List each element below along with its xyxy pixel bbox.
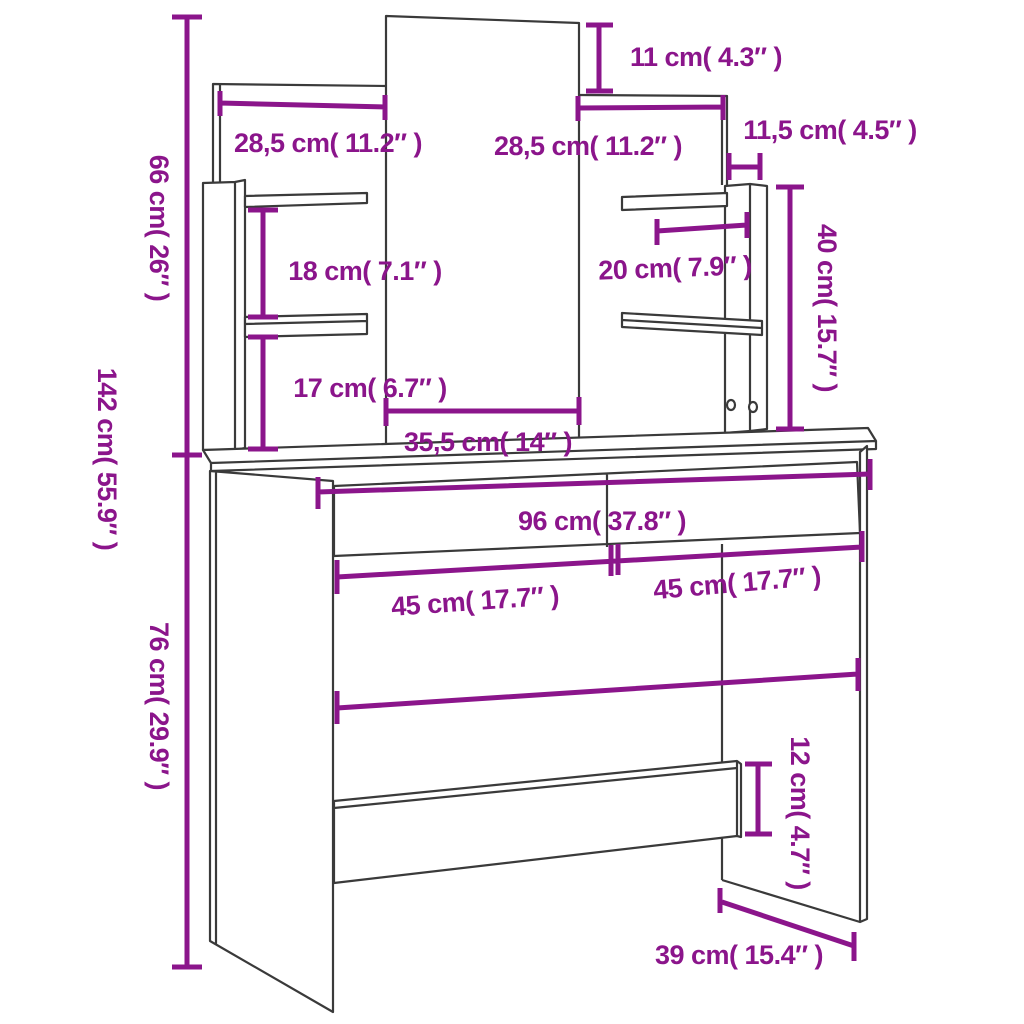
label-right-shelf-width: 20 cm( 7.9″ ) xyxy=(598,250,752,285)
label-tabletop-width: 96 cm( 37.8″ ) xyxy=(518,506,686,536)
label-stretcher-height: 12 cm( 4.7″ ) xyxy=(785,736,815,890)
label-side-column-gap: 11,5 cm( 4.5″ ) xyxy=(743,115,917,145)
dim-line-right-panel-width xyxy=(578,95,723,121)
dim-line-side-column-gap xyxy=(729,153,760,180)
label-base-depth: 39 cm( 15.4″ ) xyxy=(655,940,823,970)
left-shelf-post xyxy=(203,180,245,450)
label-mirror-width: 35,5 cm( 14″ ) xyxy=(404,427,572,457)
dim-line-total-height xyxy=(172,17,202,967)
label-total-height: 142 cm( 55.9″ ) xyxy=(92,368,122,551)
label-upper-section-height: 66 cm( 26″ ) xyxy=(144,155,174,302)
dim-line-mirror-top-offset xyxy=(586,25,613,91)
label-left-shelf-gap-lower: 17 cm( 6.7″ ) xyxy=(293,373,447,403)
left-shelf-upper xyxy=(245,193,367,207)
dimension-diagram-page: 66 cm( 26″ ) 142 cm( 55.9″ ) 76 cm( 29.9… xyxy=(0,0,1024,1024)
label-left-shelf-gap-upper: 18 cm( 7.1″ ) xyxy=(288,256,442,286)
label-table-height: 76 cm( 29.9″ ) xyxy=(144,622,174,790)
label-right-panel-width: 28,5 cm( 11.2″ ) xyxy=(494,131,682,161)
dim-line-left-shelf-gap-lower xyxy=(248,337,278,449)
dim-line-lower-width xyxy=(337,658,858,724)
left-side-panel xyxy=(210,471,333,1012)
dim-line-stretcher-height xyxy=(745,764,772,834)
label-left-drawer-width: 45 cm( 17.7″ ) xyxy=(390,580,560,622)
dressing-table-dimension-diagram: 66 cm( 26″ ) 142 cm( 55.9″ ) 76 cm( 29.9… xyxy=(0,0,1024,1024)
label-left-panel-width: 28,5 cm( 11.2″ ) xyxy=(234,128,422,158)
cam-hole-icon xyxy=(749,402,757,412)
cam-hole-icon xyxy=(727,400,735,410)
front-stretcher-board xyxy=(334,761,741,883)
dim-line-shelf-column-height xyxy=(776,187,804,429)
label-shelf-column-height: 40 cm( 15.7″ ) xyxy=(812,224,842,392)
label-right-drawer-width: 45 cm( 17.7″ ) xyxy=(652,561,822,606)
dim-line-left-shelf-gap-upper xyxy=(248,210,278,317)
label-mirror-top-offset: 11 cm( 4.3″ ) xyxy=(630,42,782,72)
right-shelf-upper xyxy=(622,193,727,210)
dim-line-left-panel-width xyxy=(220,91,385,120)
